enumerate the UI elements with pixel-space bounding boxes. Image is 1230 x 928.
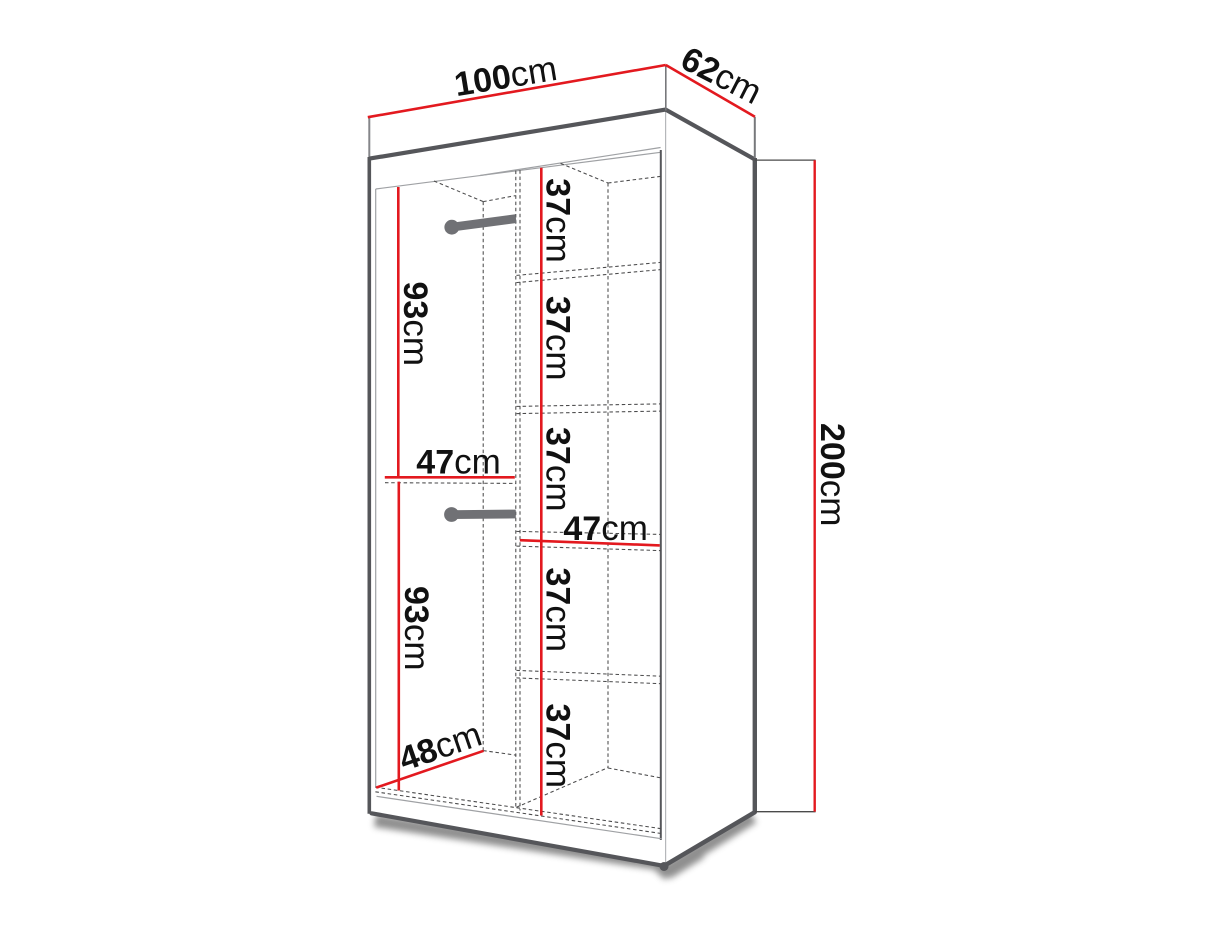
svg-text:200cm: 200cm: [813, 423, 852, 526]
svg-text:93cm: 93cm: [396, 282, 435, 366]
svg-text:37cm: 37cm: [539, 427, 578, 511]
svg-text:93cm: 93cm: [397, 586, 436, 670]
svg-text:37cm: 37cm: [539, 568, 578, 652]
svg-text:47cm: 47cm: [416, 442, 500, 481]
svg-text:37cm: 37cm: [539, 178, 578, 262]
svg-text:37cm: 37cm: [539, 296, 578, 380]
svg-text:47cm: 47cm: [563, 509, 647, 548]
svg-text:37cm: 37cm: [539, 704, 578, 788]
